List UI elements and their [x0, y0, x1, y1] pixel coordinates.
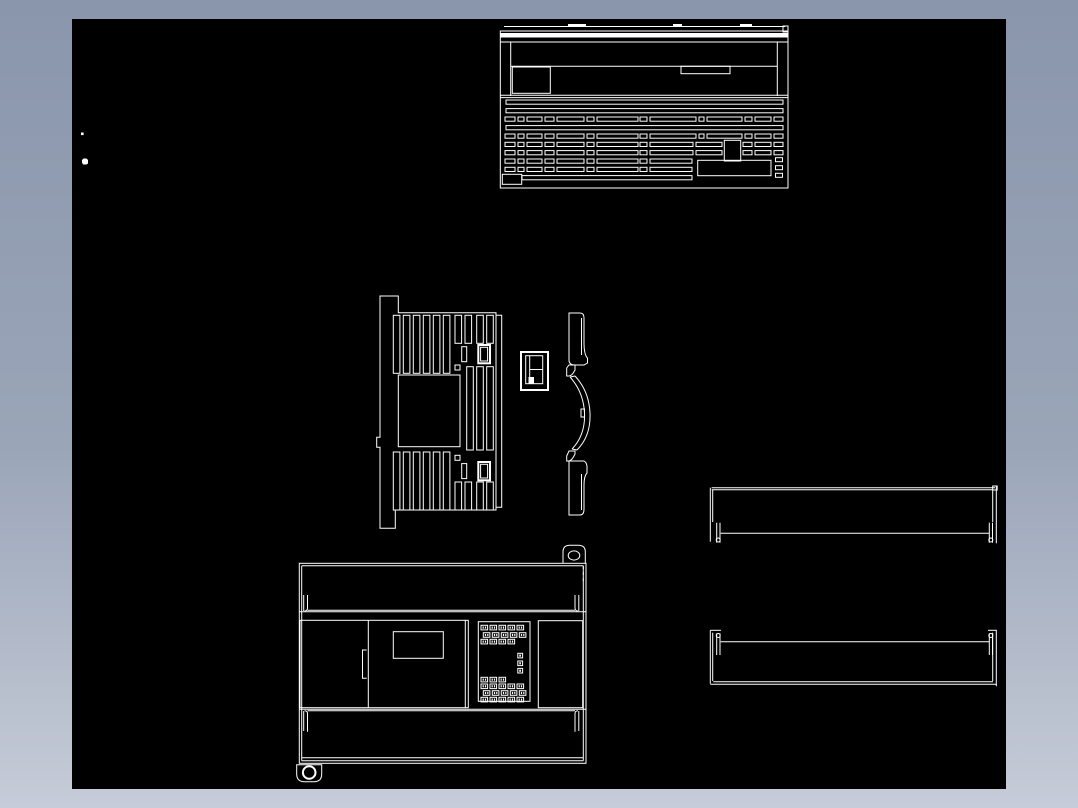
din-rail-lower [710, 630, 996, 686]
led-indicator-grid [481, 625, 526, 702]
side-view [377, 296, 502, 528]
front-view [297, 545, 586, 781]
drawing-canvas [72, 19, 1006, 789]
top-view [500, 24, 788, 188]
side-profile [567, 313, 590, 515]
stray-marks [81, 133, 88, 165]
side-view-vent-slots [393, 315, 493, 510]
preview-frame [0, 0, 1078, 808]
din-rail-upper [710, 486, 997, 543]
clip-detail [521, 352, 548, 390]
top-view-vent-slots [505, 100, 783, 180]
cad-drawing [72, 19, 1006, 789]
